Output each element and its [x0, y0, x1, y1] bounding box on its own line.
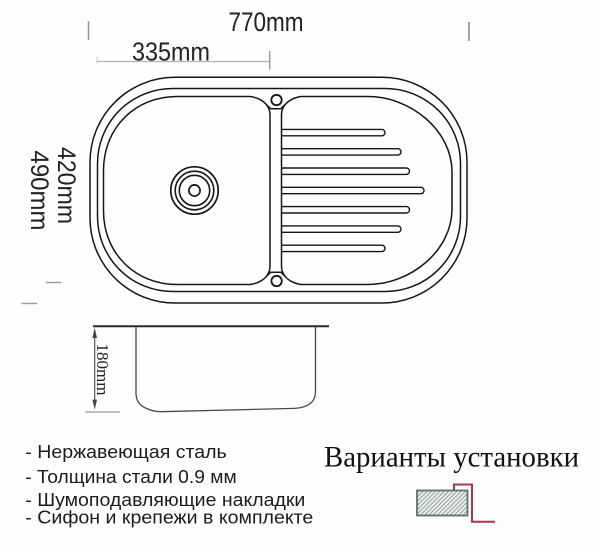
- svg-text:- Толщина стали 0.9 мм: - Толщина стали 0.9 мм: [25, 466, 236, 487]
- svg-text:- Сифон и крепежи в комплекте: - Сифон и крепежи в комплекте: [25, 507, 313, 528]
- svg-text:Варианты установки: Варианты установки: [324, 441, 579, 474]
- svg-text:490mm: 490mm: [25, 151, 53, 231]
- svg-text:420mm: 420mm: [52, 147, 80, 224]
- svg-text:770mm: 770mm: [229, 7, 304, 37]
- svg-text:180mm: 180mm: [93, 344, 112, 396]
- svg-text:- Нержавеющая сталь: - Нержавеющая сталь: [25, 441, 226, 462]
